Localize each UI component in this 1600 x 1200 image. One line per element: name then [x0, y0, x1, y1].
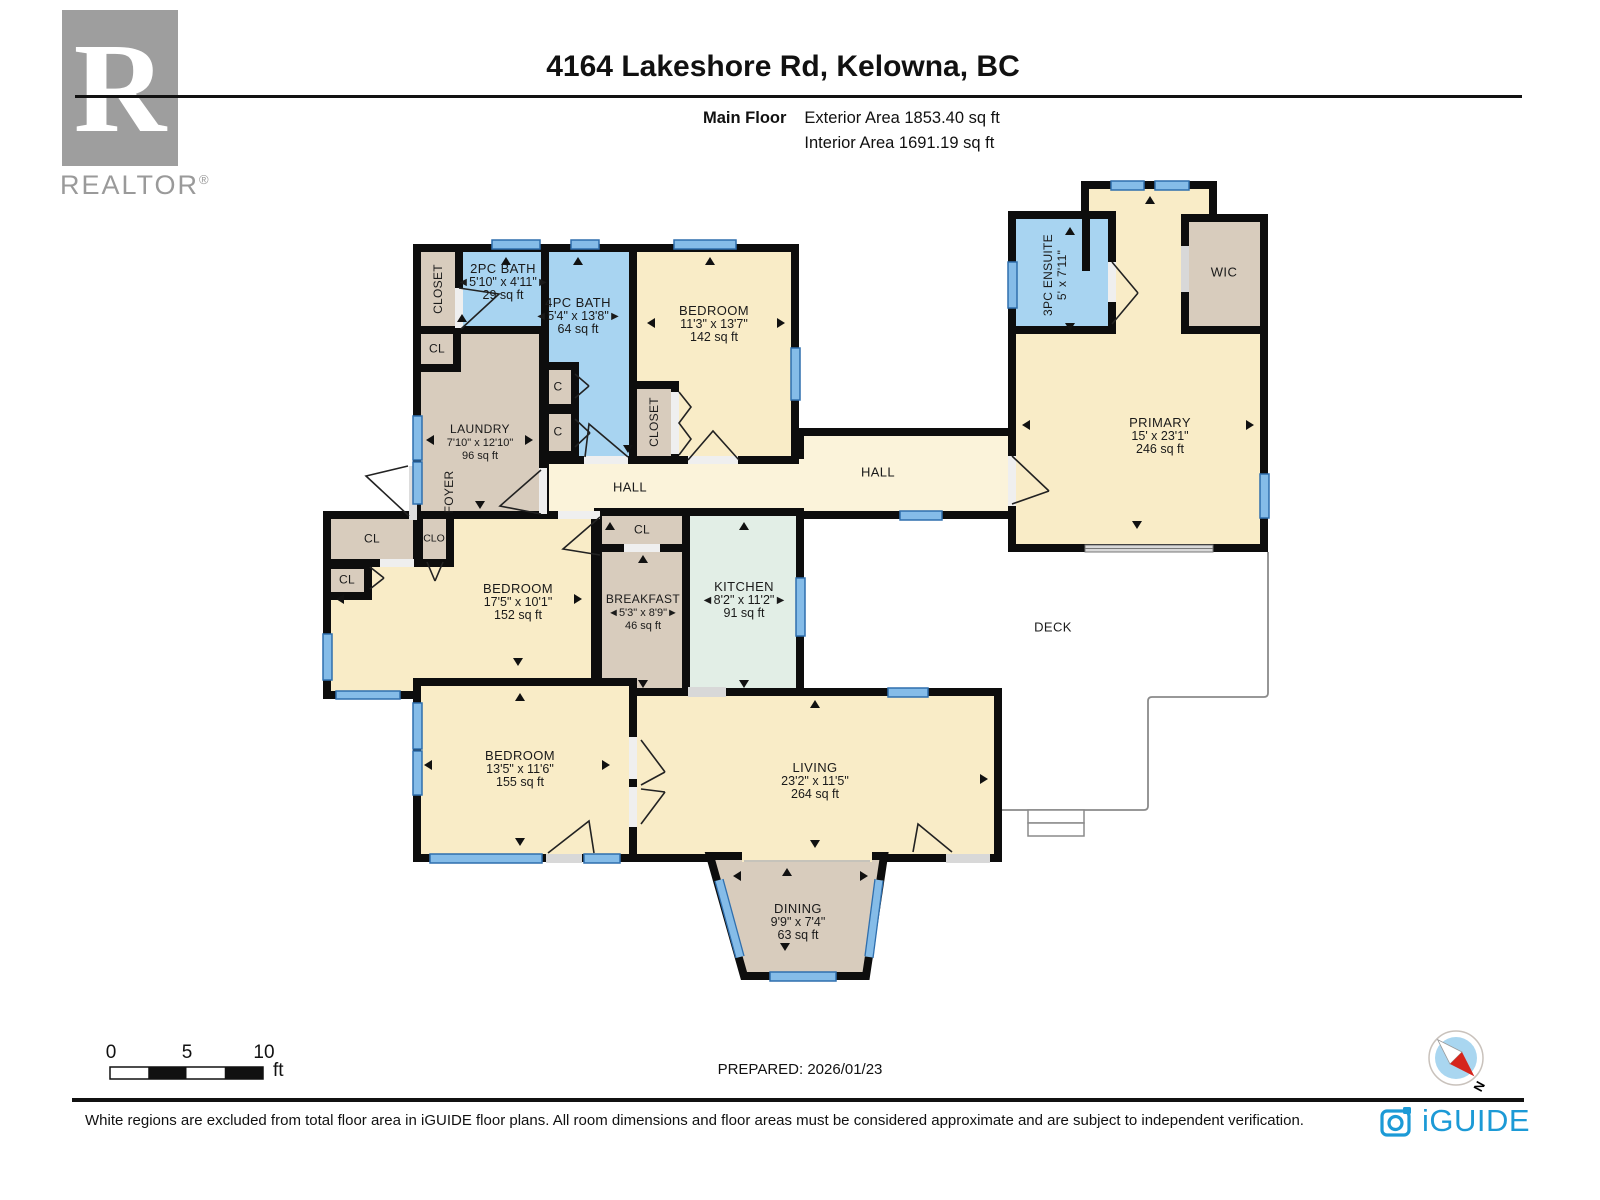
floor-plan-page: R REALTOR® 4164 Lakeshore Rd, Kelowna, B… [0, 0, 1600, 1200]
room-label-wic: WIC [1211, 265, 1237, 279]
scale-tick-5: 5 [182, 1042, 193, 1064]
room-label-c1: C [554, 380, 563, 394]
room-label-bedroom-mid: BEDROOM17'5" x 10'1"152 sq ft [483, 582, 553, 623]
scale-tick-10: 10 [253, 1042, 274, 1064]
footer-rule [72, 1098, 1524, 1102]
room-label-hall-a: HALL [613, 480, 647, 494]
room-label-4pc-bath: 4PC BATH◄5'4" x 13'8"►64 sq ft [535, 296, 621, 337]
compass-north-label: N [1470, 1079, 1488, 1094]
room-label-closet-b: CLOSET [647, 397, 661, 447]
floor-plan-drawing: N [0, 0, 1600, 1200]
room-label-c2: C [554, 425, 563, 439]
room-label-primary: PRIMARY15' x 23'1"246 sq ft [1129, 416, 1191, 457]
room-label-deck: DECK [1034, 620, 1072, 634]
room-label-cl-m1: CL [364, 532, 380, 546]
deck-outline [1002, 552, 1268, 810]
compass-icon: N [1429, 1031, 1488, 1094]
deck-stair-1 [1028, 810, 1084, 823]
primary-sliding-door [1085, 545, 1213, 552]
room-label-hall-b: HALL [861, 465, 895, 479]
room-label-laundry: LAUNDRY7'10" x 12'10"96 sq ft [447, 423, 513, 464]
dining-opening [742, 850, 872, 862]
deck-stair-2 [1028, 823, 1084, 836]
room-label-bedroom-low: BEDROOM13'5" x 11'6"155 sq ft [485, 749, 555, 790]
scale-tick-0: 0 [106, 1042, 117, 1064]
room-label-foyer: FOYER [442, 471, 456, 514]
room-label-clo: CLO [423, 532, 445, 546]
disclaimer-text: White regions are excluded from total fl… [85, 1112, 1304, 1129]
room-label-living: LIVING23'2" x 11'5"264 sq ft [781, 761, 849, 802]
iguide-wordmark: iGUIDE [1422, 1103, 1530, 1139]
room-label-cl-k: CL [634, 523, 650, 537]
room-label-closet-a: CLOSET [431, 264, 445, 314]
room-label-breakfast: BREAKFAST◄5'3" x 8'9"►46 sq ft [606, 593, 680, 634]
iguide-camera-icon [1379, 1105, 1415, 1137]
room-label-ensuite: 3PC ENSUITE5' x 7'11" [1041, 234, 1069, 316]
scale-unit: ft [273, 1060, 284, 1082]
room-label-cl-a: CL [429, 342, 445, 356]
scale-bar [110, 1067, 263, 1079]
prepared-date: PREPARED: 2026/01/23 [718, 1061, 883, 1078]
ensuite-interior-wall [1082, 215, 1090, 271]
iguide-logo: iGUIDE [1379, 1103, 1530, 1139]
room-label-kitchen: KITCHEN◄8'2" x 11'2"►91 sq ft [701, 580, 786, 621]
room-label-cl-m2: CL [339, 573, 355, 587]
room-label-dining: DINING9'9" x 7'4"63 sq ft [771, 902, 826, 943]
room-label-bedroom-top: BEDROOM11'3" x 13'7"142 sq ft [679, 304, 749, 345]
